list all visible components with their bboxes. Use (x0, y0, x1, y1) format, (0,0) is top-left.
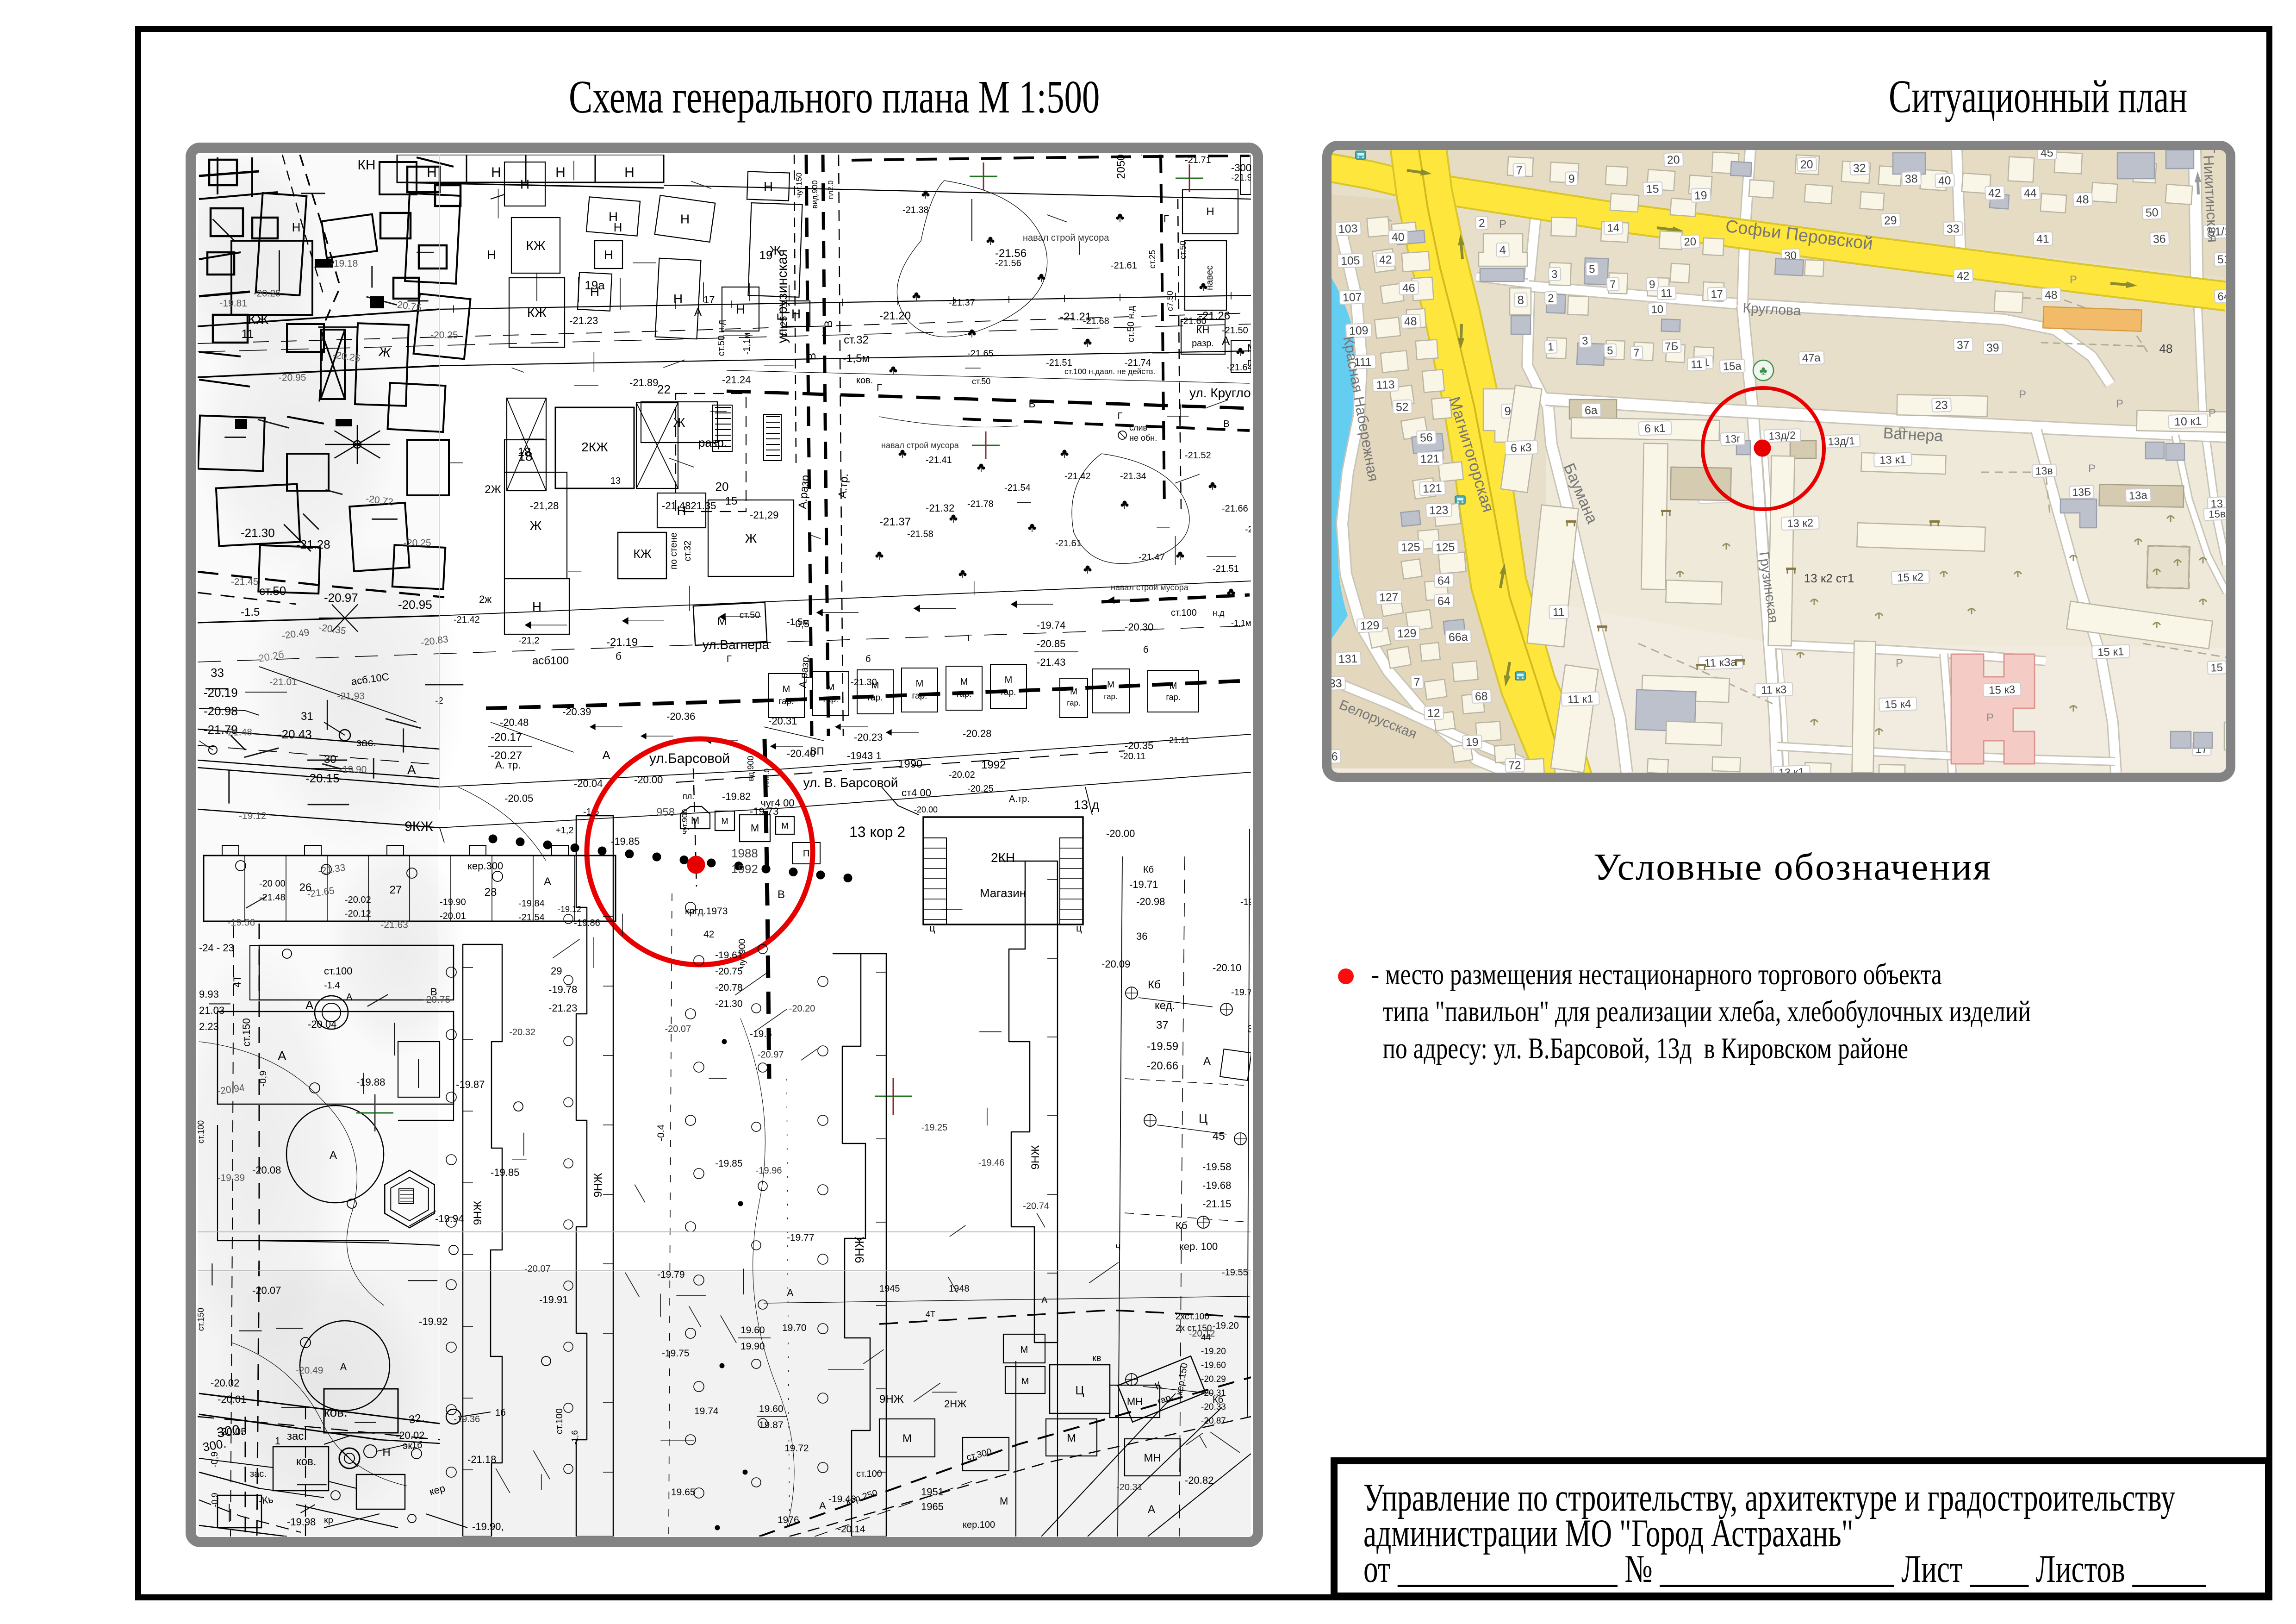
svg-text:13д/2: 13д/2 (1768, 429, 1796, 442)
svg-text:37: 37 (1956, 339, 1970, 352)
svg-text:Кб: Кб (1176, 1220, 1187, 1231)
svg-text:Круглова: Круглова (1742, 300, 1802, 319)
svg-text:-21.24: -21.24 (722, 374, 751, 386)
svg-text:52: 52 (1395, 401, 1409, 414)
svg-text:-20.32: -20.32 (509, 1027, 535, 1037)
svg-text:-21.32: -21.32 (926, 502, 954, 514)
svg-text:Ц: Ц (1199, 1112, 1207, 1125)
svg-text:-1943 1: -1943 1 (847, 750, 882, 762)
svg-text:Р: Р (1499, 218, 1506, 231)
svg-text:-19.85: -19.85 (611, 836, 640, 847)
svg-text:-19.78: -19.78 (548, 984, 577, 995)
svg-text:-21.20: -21.20 (879, 310, 911, 322)
svg-text:б: б (865, 654, 871, 664)
svg-text:Ц: Ц (1075, 1383, 1084, 1397)
svg-text:Кб: Кб (1143, 865, 1154, 875)
svg-text:зас.: зас. (356, 737, 376, 749)
svg-text:105: 105 (1341, 255, 1360, 268)
svg-text:Магазин: Магазин (980, 886, 1026, 900)
svg-text:15 к3: 15 к3 (1989, 683, 2016, 697)
svg-text:Р: Р (2209, 407, 2216, 419)
svg-text:19: 19 (1694, 189, 1707, 202)
svg-text:11: 11 (1691, 358, 1703, 371)
svg-text:-20.00: -20.00 (1106, 828, 1135, 839)
svg-text:-19.20: -19.20 (1201, 1347, 1226, 1356)
svg-text:-20.48: -20.48 (500, 717, 529, 728)
svg-text:В: В (778, 888, 785, 901)
svg-text:-20.29: -20.29 (1201, 1374, 1226, 1384)
svg-text:-19.77: -19.77 (787, 1232, 815, 1243)
svg-text:13 к1: 13 к1 (1879, 453, 1906, 467)
svg-text:-21.42: -21.42 (1064, 471, 1091, 481)
svg-text:-1,1м: -1,1м (1231, 618, 1251, 628)
svg-text:гар.: гар. (779, 697, 794, 706)
svg-text:27: 27 (390, 884, 402, 896)
svg-text:ВП: ВП (810, 745, 824, 757)
svg-text:Г: Г (877, 382, 882, 394)
svg-text:6: 6 (1331, 750, 1338, 763)
svg-text:-19.96: -19.96 (756, 1166, 782, 1176)
svg-text:-19.12: -19.12 (239, 811, 267, 821)
svg-text:Н: Н (680, 212, 690, 226)
svg-text:1948: 1948 (949, 1284, 970, 1294)
svg-text:-19.85: -19.85 (715, 1158, 743, 1169)
svg-text:13г: 13г (1724, 432, 1741, 445)
svg-text:-19.90: -19.90 (440, 897, 466, 907)
svg-text:-1.5: -1.5 (241, 606, 260, 618)
svg-text:9: 9 (1649, 278, 1655, 291)
svg-text:М: М (871, 681, 879, 691)
svg-text:-20.97: -20.97 (758, 1049, 784, 1060)
svg-text:13 к2: 13 к2 (1787, 517, 1814, 530)
svg-text:-21.45: -21.45 (231, 577, 259, 587)
svg-text:20: 20 (716, 480, 729, 493)
svg-text:1992: 1992 (731, 862, 758, 876)
svg-text:М: М (1070, 687, 1077, 697)
svg-text:ул. В. Барсовой: ул. В. Барсовой (803, 775, 898, 790)
svg-text:28: 28 (485, 886, 497, 899)
svg-text:15: 15 (725, 495, 738, 507)
svg-text:-1.4: -1.4 (324, 981, 340, 991)
svg-text:1945: 1945 (879, 1284, 900, 1294)
svg-text:Н: Н (624, 165, 635, 180)
svg-text:40: 40 (1391, 231, 1405, 244)
svg-text:-21.34: -21.34 (1120, 471, 1146, 481)
svg-text:-21.63: -21.63 (380, 919, 408, 930)
svg-text:кер. 100: кер. 100 (1179, 1241, 1218, 1252)
svg-text:пл.: пл. (683, 792, 694, 801)
svg-text:-1,5м: -1,5м (843, 352, 870, 365)
svg-text:47а: 47а (1802, 351, 1821, 364)
svg-text:-19.56: -19.56 (228, 917, 255, 928)
svg-text:8: 8 (1517, 294, 1524, 307)
svg-text:37: 37 (1156, 1019, 1169, 1031)
svg-text:33: 33 (1946, 223, 1960, 236)
svg-text:-20.05: -20.05 (504, 793, 533, 804)
svg-text:2: 2 (1548, 292, 1554, 305)
svg-text:-20.09: -20.09 (1101, 958, 1130, 970)
svg-text:В: В (822, 320, 835, 328)
svg-text:гар.: гар. (1067, 699, 1080, 707)
svg-text:Р: Р (2019, 388, 2026, 401)
svg-text:22: 22 (657, 382, 671, 396)
svg-text:гар.: гар. (1166, 693, 1180, 702)
svg-text:-21.37: -21.37 (949, 298, 975, 308)
svg-text:123: 123 (1429, 504, 1449, 517)
svg-text:14: 14 (1607, 222, 1620, 235)
svg-text:М: М (691, 815, 699, 826)
svg-text:13: 13 (610, 476, 621, 486)
svg-text:ст.50: ст.50 (259, 584, 286, 598)
svg-text:129: 129 (1360, 619, 1380, 632)
svg-text:Н: Н (791, 307, 801, 321)
svg-text:-21.71: -21.71 (1185, 155, 1211, 165)
svg-text:-20.07: -20.07 (524, 1264, 551, 1274)
svg-text:-21.61: -21.61 (1055, 538, 1082, 549)
svg-text:56: 56 (1419, 431, 1433, 444)
svg-text:11: 11 (242, 327, 254, 341)
svg-text:МН: МН (1127, 1396, 1143, 1407)
svg-text:958: 958 (656, 806, 675, 818)
svg-text:20: 20 (1667, 154, 1680, 167)
svg-text:-20.00: -20.00 (634, 774, 663, 786)
svg-text:Н: Н (614, 220, 622, 234)
svg-text:-19.6: -19.6 (750, 1029, 772, 1039)
svg-text:32: 32 (1853, 162, 1866, 175)
svg-text:П: П (803, 849, 809, 859)
svg-text:разр.: разр. (1192, 338, 1214, 349)
svg-text:-20.25: -20.25 (430, 330, 458, 341)
svg-text:-19.87: -19.87 (456, 1079, 485, 1090)
svg-text:М: М (783, 684, 790, 694)
svg-text:44: 44 (2023, 187, 2037, 200)
svg-text:КЖ: КЖ (633, 547, 651, 561)
svg-text:129: 129 (1397, 627, 1417, 640)
svg-text:-21.23: -21.23 (569, 315, 598, 326)
svg-text:9НЖ: 9НЖ (1029, 1145, 1042, 1170)
svg-text:б: б (616, 650, 622, 662)
svg-text:107: 107 (1343, 291, 1362, 304)
svg-text:29: 29 (1884, 214, 1897, 227)
svg-text:12: 12 (1427, 707, 1440, 720)
svg-text:-21.11: -21.11 (1166, 736, 1189, 745)
svg-text:-21.41: -21.41 (926, 455, 952, 465)
svg-text:гар.: гар. (1001, 687, 1016, 697)
svg-text:-21.23: -21.23 (548, 1002, 577, 1014)
svg-text:13 кор 2: 13 кор 2 (849, 824, 905, 840)
svg-text:7: 7 (1516, 164, 1523, 177)
svg-text:М: М (827, 682, 835, 693)
svg-text:-19.82: -19.82 (722, 791, 751, 802)
svg-text:-19.68: -19.68 (1202, 1180, 1231, 1191)
svg-text:-20.36: -20.36 (666, 711, 695, 722)
svg-text:-20 00: -20 00 (259, 879, 286, 889)
svg-text:6 к1: 6 к1 (1644, 422, 1666, 436)
svg-text:слив: слив (1129, 423, 1147, 432)
svg-text:Н: Н (487, 248, 496, 262)
svg-text:Н: Н (1206, 206, 1214, 218)
svg-text:40: 40 (1938, 175, 1951, 187)
svg-text:ц: ц (929, 922, 935, 934)
svg-text:М: М (1021, 1376, 1029, 1387)
svg-text:-19.60: -19.60 (1201, 1361, 1226, 1370)
svg-text:-20.12: -20.12 (1189, 1329, 1215, 1339)
svg-text:38: 38 (1904, 173, 1918, 186)
svg-text:7Б: 7Б (1665, 340, 1679, 353)
svg-text:-0,9: -0,9 (258, 1071, 268, 1087)
svg-text:пл2.0: пл2.0 (763, 768, 771, 787)
svg-text:А: А (694, 306, 702, 319)
svg-text:-20.25: -20.25 (253, 288, 281, 299)
svg-text:А: А (602, 748, 610, 762)
svg-text:-20.25: -20.25 (404, 538, 431, 549)
svg-text:М: М (1107, 680, 1114, 690)
svg-text:по стене: по стене (669, 532, 679, 569)
svg-text:13д/1: 13д/1 (1828, 435, 1855, 448)
svg-text:6а: 6а (1584, 404, 1598, 417)
svg-text:асб100: асб100 (532, 655, 569, 667)
svg-text:-21.19: -21.19 (606, 636, 638, 649)
svg-text:9.93: 9.93 (199, 988, 219, 1000)
svg-text:-20.23: -20.23 (854, 731, 883, 743)
svg-text:10 к1: 10 к1 (2174, 415, 2202, 428)
svg-text:М: М (916, 679, 924, 689)
svg-text:М: М (960, 677, 968, 687)
svg-text:Вагнера: Вагнера (1883, 425, 1943, 445)
svg-text:5: 5 (1589, 263, 1595, 275)
svg-text:42: 42 (1956, 270, 1970, 283)
svg-text:-21.43: -21.43 (1037, 656, 1065, 668)
svg-text:-21.93: -21.93 (337, 691, 365, 702)
svg-text:вид.900: вид.900 (810, 180, 819, 209)
svg-text:б: б (1143, 645, 1148, 655)
svg-text:ст.50: ст.50 (740, 610, 760, 620)
svg-text:Р: Р (1986, 712, 1994, 724)
svg-text:навал строй мусора: навал строй мусора (1023, 233, 1109, 243)
svg-text:гар.: гар. (868, 693, 883, 703)
svg-text:-21.30: -21.30 (715, 999, 743, 1009)
svg-text:9КЖ: 9КЖ (404, 819, 433, 834)
svg-text:-19.88: -19.88 (356, 1076, 385, 1088)
svg-text:-20.95: -20.95 (398, 598, 432, 612)
svg-text:ков.: ков. (856, 375, 873, 386)
svg-text:2КН: 2КН (991, 850, 1015, 865)
svg-text:-21.4821.35: -21.4821.35 (662, 500, 716, 512)
svg-text:-20.31: -20.31 (1116, 1482, 1143, 1493)
svg-text:-20.20: -20.20 (789, 1004, 815, 1014)
svg-text:13а: 13а (2128, 489, 2148, 502)
svg-text:125: 125 (1436, 541, 1455, 554)
svg-text:15: 15 (1646, 183, 1659, 196)
svg-text:-0,5: -0,5 (792, 618, 809, 630)
svg-text:-21.54: -21.54 (1004, 483, 1031, 493)
svg-text:А: А (305, 998, 314, 1012)
svg-text:-19.25: -19.25 (921, 1123, 948, 1133)
svg-text:вд.900: вд.900 (746, 756, 755, 781)
svg-text:В: В (1029, 398, 1036, 410)
svg-text:-20.19: -20.19 (204, 686, 238, 700)
svg-text:чуг.150: чуг.150 (795, 173, 803, 198)
svg-text:Н: Н (673, 292, 683, 306)
svg-text:17: 17 (1711, 288, 1724, 301)
svg-text:19: 19 (759, 248, 773, 262)
svg-text:-20.75: -20.75 (423, 994, 451, 1005)
svg-text:Г: Г (967, 633, 972, 643)
svg-text:13 д: 13 д (1074, 798, 1099, 812)
svg-text:-19.81: -19.81 (219, 298, 247, 309)
svg-text:-21.56: -21.56 (995, 247, 1027, 260)
svg-text:ст.100 н.давл. не действ.: ст.100 н.давл. не действ. (1064, 367, 1155, 376)
svg-text:20: 20 (1684, 236, 1697, 249)
svg-text:-21,2: -21,2 (518, 636, 540, 646)
svg-text:7: 7 (1633, 347, 1640, 359)
svg-text:29: 29 (551, 965, 562, 977)
svg-text:-21.01: -21.01 (269, 677, 297, 687)
svg-text:А: А (407, 762, 416, 777)
svg-text:-20 43: -20 43 (278, 727, 312, 741)
svg-text:64: 64 (1437, 595, 1450, 608)
svg-text:-20.07: -20.07 (665, 1024, 691, 1034)
svg-text:М: М (1170, 681, 1177, 691)
svg-text:39: 39 (1986, 342, 1999, 355)
svg-text:Н: Н (491, 165, 501, 180)
svg-text:121: 121 (1420, 453, 1440, 466)
svg-text:131: 131 (1338, 653, 1358, 666)
svg-text:31: 31 (301, 710, 313, 723)
svg-text:ч: ч (1115, 1241, 1120, 1252)
svg-text:-21.66: -21.66 (1222, 504, 1248, 514)
svg-text:-20.78: -20.78 (715, 982, 743, 993)
svg-text:-20.95: -20.95 (279, 372, 306, 383)
svg-text:66а: 66а (1449, 631, 1468, 644)
svg-text:Ж: Ж (673, 415, 685, 430)
svg-text:Н: Н (604, 248, 613, 262)
svg-text:125: 125 (1401, 541, 1420, 554)
svg-text:не обн.: не обн. (1129, 433, 1157, 443)
svg-text:М: М (1020, 1345, 1028, 1355)
svg-text:-19.84: -19.84 (518, 899, 545, 909)
svg-text:Г: Г (727, 654, 732, 664)
svg-text:-19.71: -19.71 (1129, 879, 1158, 890)
svg-text:-19.94: -19.94 (435, 1213, 464, 1224)
svg-text:2.23: 2.23 (199, 1021, 219, 1032)
svg-text:-20.74: -20.74 (1023, 1201, 1049, 1212)
svg-text:68: 68 (1475, 690, 1488, 703)
svg-text:13в: 13в (2035, 464, 2053, 477)
svg-text:1: 1 (1548, 341, 1554, 353)
svg-text:пл2.0: пл2.0 (827, 181, 835, 199)
svg-text:19: 19 (1465, 736, 1479, 749)
svg-text:15а: 15а (1723, 360, 1742, 373)
svg-text:-20.31: -20.31 (1201, 1388, 1226, 1398)
svg-text:кед.: кед. (1155, 999, 1175, 1012)
svg-text:42: 42 (1988, 187, 2001, 200)
svg-text:-19.12: -19.12 (558, 905, 581, 914)
svg-text:4: 4 (1499, 244, 1506, 257)
svg-text:-20.17: -20.17 (491, 731, 522, 743)
svg-text:11: 11 (1661, 287, 1673, 300)
svg-text:гар.: гар. (823, 695, 839, 705)
svg-text:Ж: Ж (530, 518, 542, 533)
svg-text:Н: Н (520, 177, 529, 192)
svg-text:-20.85: -20.85 (1037, 638, 1065, 650)
svg-text:гар.: гар. (912, 691, 927, 701)
svg-text:Кб: Кб (1148, 979, 1161, 991)
svg-text:18: 18 (518, 445, 531, 459)
svg-text:ст.50 н.д: ст.50 н.д (1126, 306, 1136, 342)
svg-text:-20.49: -20.49 (296, 1365, 324, 1376)
svg-text:-20.75: -20.75 (715, 966, 743, 977)
svg-text:2: 2 (1478, 217, 1485, 230)
svg-text:Р: Р (2070, 274, 2077, 286)
svg-text:+1,2: +1,2 (555, 825, 573, 836)
svg-text:15 к4: 15 к4 (1885, 698, 1911, 711)
svg-text:15: 15 (2210, 662, 2223, 675)
svg-text:КЖ: КЖ (526, 238, 545, 253)
svg-text:гар.: гар. (1104, 692, 1117, 701)
svg-text:-21.26: -21.26 (1199, 310, 1230, 322)
svg-text:127: 127 (1379, 591, 1399, 604)
svg-text:48: 48 (2159, 342, 2173, 356)
svg-text:36: 36 (2153, 233, 2166, 246)
svg-text:9НЖ: 9НЖ (592, 1173, 604, 1198)
svg-text:4Т: 4Т (926, 1310, 935, 1319)
svg-text:А: А (1222, 334, 1230, 348)
svg-text:Н: Н (292, 220, 301, 234)
svg-text:А: А (1041, 1295, 1048, 1305)
svg-text:ст.32: ст.32 (844, 334, 869, 346)
svg-text:А: А (787, 1287, 794, 1299)
svg-text:-19.36: -19.36 (454, 1414, 480, 1424)
svg-text:-20.30: -20.30 (1125, 621, 1153, 633)
svg-text:-20.25: -20.25 (967, 784, 994, 794)
svg-text:45: 45 (1213, 1130, 1225, 1143)
svg-text:15 к2: 15 к2 (1897, 571, 1924, 584)
svg-text:-19.58: -19.58 (1202, 1161, 1231, 1173)
svg-text:9НЖ: 9НЖ (852, 1237, 866, 1263)
svg-text:-21.21: -21.21 (1060, 311, 1091, 323)
svg-text:2КЖ: 2КЖ (581, 440, 608, 454)
svg-text:15 к1: 15 к1 (2097, 645, 2124, 659)
svg-text:-0.4: -0.4 (656, 1124, 666, 1141)
svg-text:Г: Г (1118, 411, 1123, 421)
svg-text:-20.66: -20.66 (1147, 1060, 1178, 1072)
svg-text:48: 48 (2076, 194, 2089, 206)
svg-text:-19.39: -19.39 (217, 1173, 245, 1183)
svg-text:н.д: н.д (1213, 608, 1225, 618)
svg-text:11: 11 (1552, 606, 1565, 619)
svg-text:гар.: гар. (957, 689, 972, 699)
svg-text:А: А (330, 1149, 337, 1162)
svg-text:-2: -2 (435, 696, 443, 706)
svg-text:4Т: 4Т (231, 975, 243, 987)
svg-text:-20.31: -20.31 (768, 715, 797, 727)
svg-text:-19.61: -19.61 (715, 950, 743, 961)
svg-text:ст.50: ст.50 (1178, 241, 1188, 259)
svg-text:-19.74: -19.74 (1037, 619, 1065, 631)
svg-text:-20.00: -20.00 (914, 805, 938, 814)
svg-text:-21.42: -21.42 (454, 615, 480, 625)
svg-text:41: 41 (2036, 233, 2049, 246)
svg-text:Р: Р (1896, 657, 1903, 669)
svg-text:-19.18: -19.18 (330, 258, 358, 269)
svg-text:2Ж: 2Ж (485, 483, 501, 496)
svg-text:11 к3: 11 к3 (1761, 683, 1787, 697)
svg-text:13Б: 13Б (2072, 486, 2091, 498)
svg-text:-21.47: -21.47 (1139, 552, 1165, 562)
svg-text:-20.11: -20.11 (1120, 751, 1145, 762)
svg-text:-20.02: -20.02 (949, 770, 975, 780)
